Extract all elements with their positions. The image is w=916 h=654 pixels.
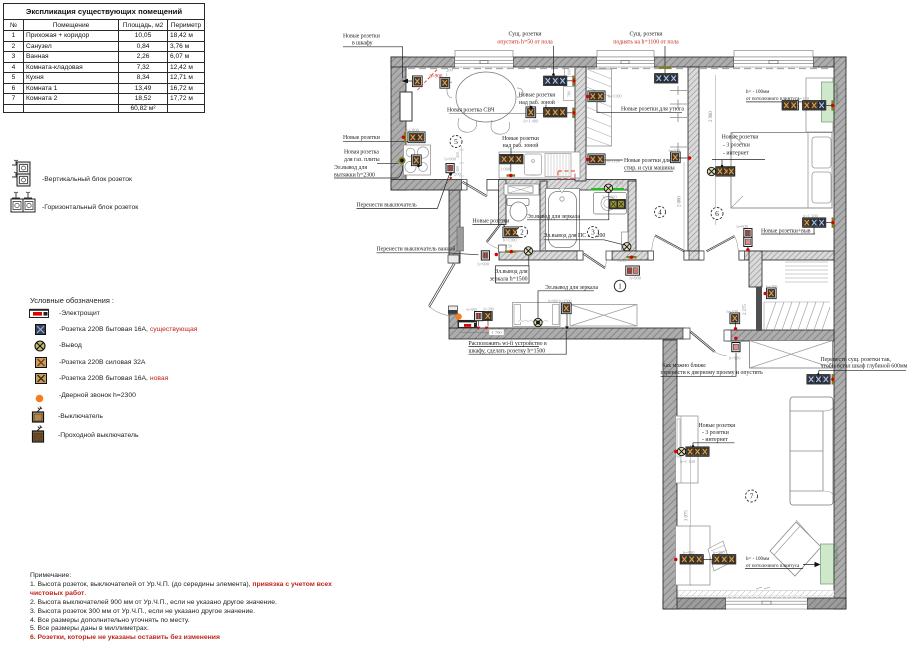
svg-text:h=1100: h=1100 xyxy=(608,94,622,99)
svg-text:кондиционер: кондиционер xyxy=(835,84,839,104)
svg-text:Новые розетки: Новые розетки xyxy=(519,93,556,99)
svg-text:Перенести выключатель: Перенести выключатель xyxy=(357,203,417,209)
svg-text:2: 2 xyxy=(520,229,524,237)
svg-text:шкафу, сделать розетку h=1500: шкафу, сделать розетку h=1500 xyxy=(469,347,546,354)
svg-text:h= - 100мм: h= - 100мм xyxy=(746,557,770,562)
svg-text:3: 3 xyxy=(591,229,595,237)
svg-text:Новые розетки: Новые розетки xyxy=(699,423,736,429)
svg-text:h=900 h=1500: h=900 h=1500 xyxy=(548,299,572,304)
svg-text:Новые розетки для утюга: Новые розетки для утюга xyxy=(621,107,684,113)
svg-text:h=900: h=900 xyxy=(445,157,457,162)
svg-text:Новая розетка СВЧ: Новая розетка СВЧ xyxy=(447,108,495,114)
svg-text:h=1 100: h=1 100 xyxy=(680,459,696,464)
svg-text:h=1100: h=1100 xyxy=(503,238,517,243)
svg-text:200: 200 xyxy=(446,68,454,73)
svg-text:Сущ. розетки: Сущ. розетки xyxy=(629,32,662,38)
svg-text:2 980: 2 980 xyxy=(709,111,714,122)
svg-text:1 000: 1 000 xyxy=(500,167,511,172)
svg-text:Сущ. розетки: Сущ. розетки xyxy=(508,32,541,38)
svg-text:h= - 100мм: h= - 100мм xyxy=(746,90,770,95)
svg-text:Эл.вывод для: Эл.вывод для xyxy=(494,269,527,275)
svg-text:2 000: 2 000 xyxy=(678,196,683,207)
svg-text:Новые розетки: Новые розетки xyxy=(722,135,759,141)
svg-text:чтобы встал шкаф глубиной 600м: чтобы встал шкаф глубиной 600мм xyxy=(821,363,908,370)
svg-text:5: 5 xyxy=(454,137,458,146)
svg-text:Расположить wi-fi устройство в: Расположить wi-fi устройство в xyxy=(469,340,548,347)
svg-text:Новые розетки для: Новые розетки для xyxy=(624,158,671,164)
svg-text:600: 600 xyxy=(567,69,572,75)
svg-text:h=1100: h=1100 xyxy=(607,159,621,164)
svg-text:вытяжки h=2300: вытяжки h=2300 xyxy=(334,172,375,178)
svg-text:для газ. плиты: для газ. плиты xyxy=(344,157,380,163)
svg-text:Как можно ближе: Как можно ближе xyxy=(662,362,706,369)
svg-text:h=900: h=900 xyxy=(478,262,490,267)
svg-text:1 700: 1 700 xyxy=(491,330,502,335)
svg-text:2 275: 2 275 xyxy=(743,304,748,315)
svg-text:Эл.вывод для зеркала: Эл.вывод для зеркала xyxy=(545,285,599,291)
svg-text:3 075: 3 075 xyxy=(685,510,690,521)
svg-text:Новые розетки+выв: Новые розетки+выв xyxy=(761,228,811,234)
svg-text:1: 1 xyxy=(618,283,622,291)
svg-text:7: 7 xyxy=(750,492,754,501)
svg-text:h=900: h=900 xyxy=(630,276,642,281)
svg-text:Эл.вывод для: Эл.вывод для xyxy=(334,165,367,171)
svg-text:Новые розетки: Новые розетки xyxy=(343,135,380,141)
svg-text:h=300: h=300 xyxy=(766,284,778,289)
svg-text:Перенести сущ. розетки так,: Перенести сущ. розетки так, xyxy=(821,357,892,363)
svg-text:Перенести выключатель ванной: Перенести выключатель ванной xyxy=(377,246,456,253)
svg-text:h=100: h=100 xyxy=(669,148,681,153)
svg-text:Новые розетки: Новые розетки xyxy=(343,34,380,40)
svg-text:- 3 розетки: - 3 розетки xyxy=(723,143,750,149)
svg-text:над раб. зоной: над раб. зоной xyxy=(503,142,539,149)
svg-text:от потолочного плинтуса: от потолочного плинтуса xyxy=(746,564,800,569)
svg-text:6: 6 xyxy=(715,209,719,218)
svg-text:h=1100: h=1100 xyxy=(603,195,617,200)
svg-text:h=900: h=900 xyxy=(430,75,443,80)
svg-text:поднять на h=1100 от пола: поднять на h=1100 от пола xyxy=(613,40,679,46)
svg-text:кондиционер: кондиционер xyxy=(835,545,839,565)
svg-text:4: 4 xyxy=(658,209,662,217)
svg-text:- интернет: - интернет xyxy=(702,437,728,443)
svg-text:Новая розетка: Новая розетка xyxy=(344,150,379,156)
svg-text:- интернет: - интернет xyxy=(723,151,749,157)
svg-text:h=1 400: h=1 400 xyxy=(524,119,540,124)
svg-text:Эл.вывод для зеркала: Эл.вывод для зеркала xyxy=(527,214,581,220)
svg-text:Новые розетки: Новые розетки xyxy=(502,136,539,142)
svg-text:200: 200 xyxy=(454,172,462,177)
svg-text:50 50: 50 50 xyxy=(614,182,623,186)
svg-text:150: 150 xyxy=(506,244,514,249)
svg-text:стир. и суш машины: стир. и суш машины xyxy=(624,165,675,171)
svg-text:Новые розетки: Новые розетки xyxy=(473,219,510,225)
svg-text:в шкафу: в шкафу xyxy=(352,40,373,47)
svg-text:h=300: h=300 xyxy=(484,306,494,311)
svg-text:перенести к дверному проему и: перенести к дверному проему и опустить xyxy=(661,370,764,376)
svg-text:h=900: h=900 xyxy=(729,356,741,361)
svg-text:опустить h=50 от пола: опустить h=50 от пола xyxy=(497,40,553,46)
svg-text:над раб. зоной: над раб. зоной xyxy=(519,99,555,106)
svg-text:780: 780 xyxy=(567,91,572,97)
svg-text:1 255: 1 255 xyxy=(617,258,626,263)
svg-text:h=100: h=100 xyxy=(727,309,739,314)
svg-text:- 3 розетки: - 3 розетки xyxy=(702,430,729,436)
